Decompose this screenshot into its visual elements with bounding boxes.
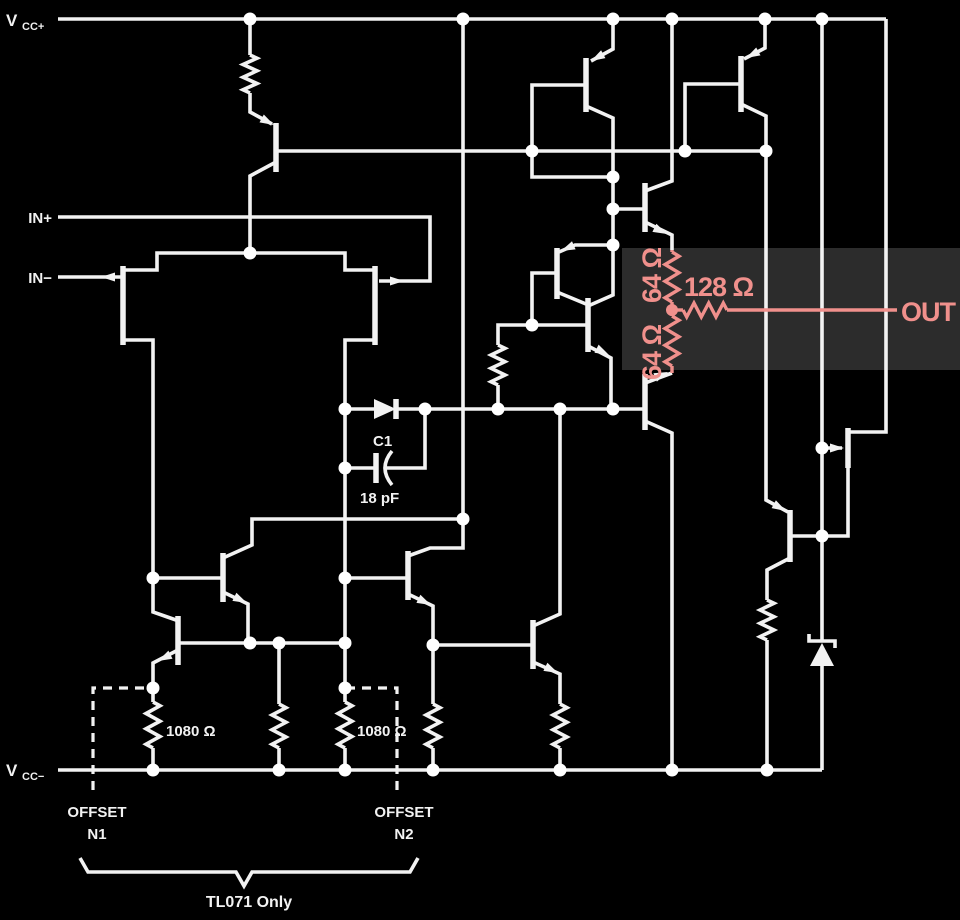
arrow-icon bbox=[772, 500, 786, 511]
wire bbox=[741, 104, 766, 151]
arrow-icon bbox=[416, 595, 431, 605]
offset-dashed-wires bbox=[93, 688, 397, 790]
wire bbox=[345, 340, 375, 688]
bias-resistor bbox=[243, 55, 257, 93]
schematic-page: V CC+ V CC− IN+ IN− C1 18 pF 64 Ω 64 Ω 1… bbox=[0, 0, 960, 920]
offset-resistor-left bbox=[146, 702, 160, 748]
out-label: OUT bbox=[901, 297, 957, 327]
wire bbox=[645, 421, 672, 770]
vcc-minus-label: V bbox=[6, 761, 18, 780]
wire bbox=[250, 93, 272, 124]
wire bbox=[557, 292, 586, 304]
r1080-right-label: 1080 Ω bbox=[357, 723, 407, 740]
wire bbox=[532, 85, 613, 177]
mirror-resistor bbox=[272, 704, 286, 748]
offset-n1-wire bbox=[93, 688, 153, 790]
r64-top-label: 64 Ω bbox=[637, 247, 667, 303]
wire bbox=[408, 19, 463, 556]
wire bbox=[588, 346, 611, 409]
diode bbox=[374, 399, 396, 419]
labels: V CC+ V CC− IN+ IN− C1 18 pF 64 Ω 64 Ω 1… bbox=[6, 11, 957, 911]
wire bbox=[223, 519, 463, 558]
arrow-icon bbox=[260, 115, 275, 126]
vcc-minus-sub-label: CC− bbox=[22, 771, 44, 783]
arrow-icon bbox=[591, 50, 605, 61]
in-minus-label: IN− bbox=[28, 270, 52, 287]
wire bbox=[532, 273, 557, 325]
offset-n2-label-line1: OFFSET bbox=[374, 804, 433, 821]
arrow-icon bbox=[746, 48, 761, 59]
junction-dots bbox=[147, 13, 829, 777]
r1080-left-label: 1080 Ω bbox=[166, 723, 216, 740]
in-plus-label: IN+ bbox=[28, 210, 52, 227]
output-bias-resistor bbox=[760, 600, 774, 640]
wire bbox=[153, 578, 176, 620]
arrow-icon bbox=[595, 345, 610, 355]
wire bbox=[588, 245, 613, 306]
wire bbox=[645, 19, 672, 191]
wire bbox=[250, 162, 276, 253]
tl071-schematic-canvas: V CC+ V CC− IN+ IN− C1 18 pF 64 Ω 64 Ω 1… bbox=[0, 0, 960, 920]
r64-bottom-label: 64 Ω bbox=[637, 324, 667, 380]
output-node bbox=[666, 304, 678, 316]
arrow-icon bbox=[561, 241, 576, 251]
vcc-plus-label: V bbox=[6, 11, 18, 30]
offset-n2-label-line2: N2 bbox=[394, 826, 413, 843]
c1-value-label: 18 pF bbox=[360, 490, 399, 507]
r128-label: 128 Ω bbox=[684, 272, 754, 302]
offset-resistor-right bbox=[338, 702, 352, 748]
wires bbox=[58, 19, 886, 770]
mirror-resistor bbox=[553, 704, 567, 748]
wire bbox=[533, 409, 560, 626]
vcc-plus-sub-label: CC+ bbox=[22, 21, 44, 33]
tl071-brace bbox=[80, 858, 418, 886]
arrow-icon bbox=[232, 593, 247, 603]
arrow-icon bbox=[543, 663, 558, 673]
stage-bias-resistor bbox=[491, 345, 505, 385]
wire bbox=[767, 558, 790, 600]
mirror-resistor bbox=[426, 704, 440, 748]
tl071-only-label: TL071 Only bbox=[206, 894, 292, 911]
wire bbox=[850, 19, 886, 432]
arrow-icon bbox=[390, 277, 404, 286]
wire bbox=[123, 340, 153, 578]
arrow-icon bbox=[101, 273, 115, 282]
wire bbox=[822, 464, 848, 536]
wire bbox=[685, 84, 741, 151]
offset-n1-label-line1: OFFSET bbox=[67, 804, 126, 821]
arrow-icon bbox=[830, 444, 844, 453]
offset-n1-label-line2: N1 bbox=[87, 826, 106, 843]
c1-designator-label: C1 bbox=[373, 433, 392, 450]
